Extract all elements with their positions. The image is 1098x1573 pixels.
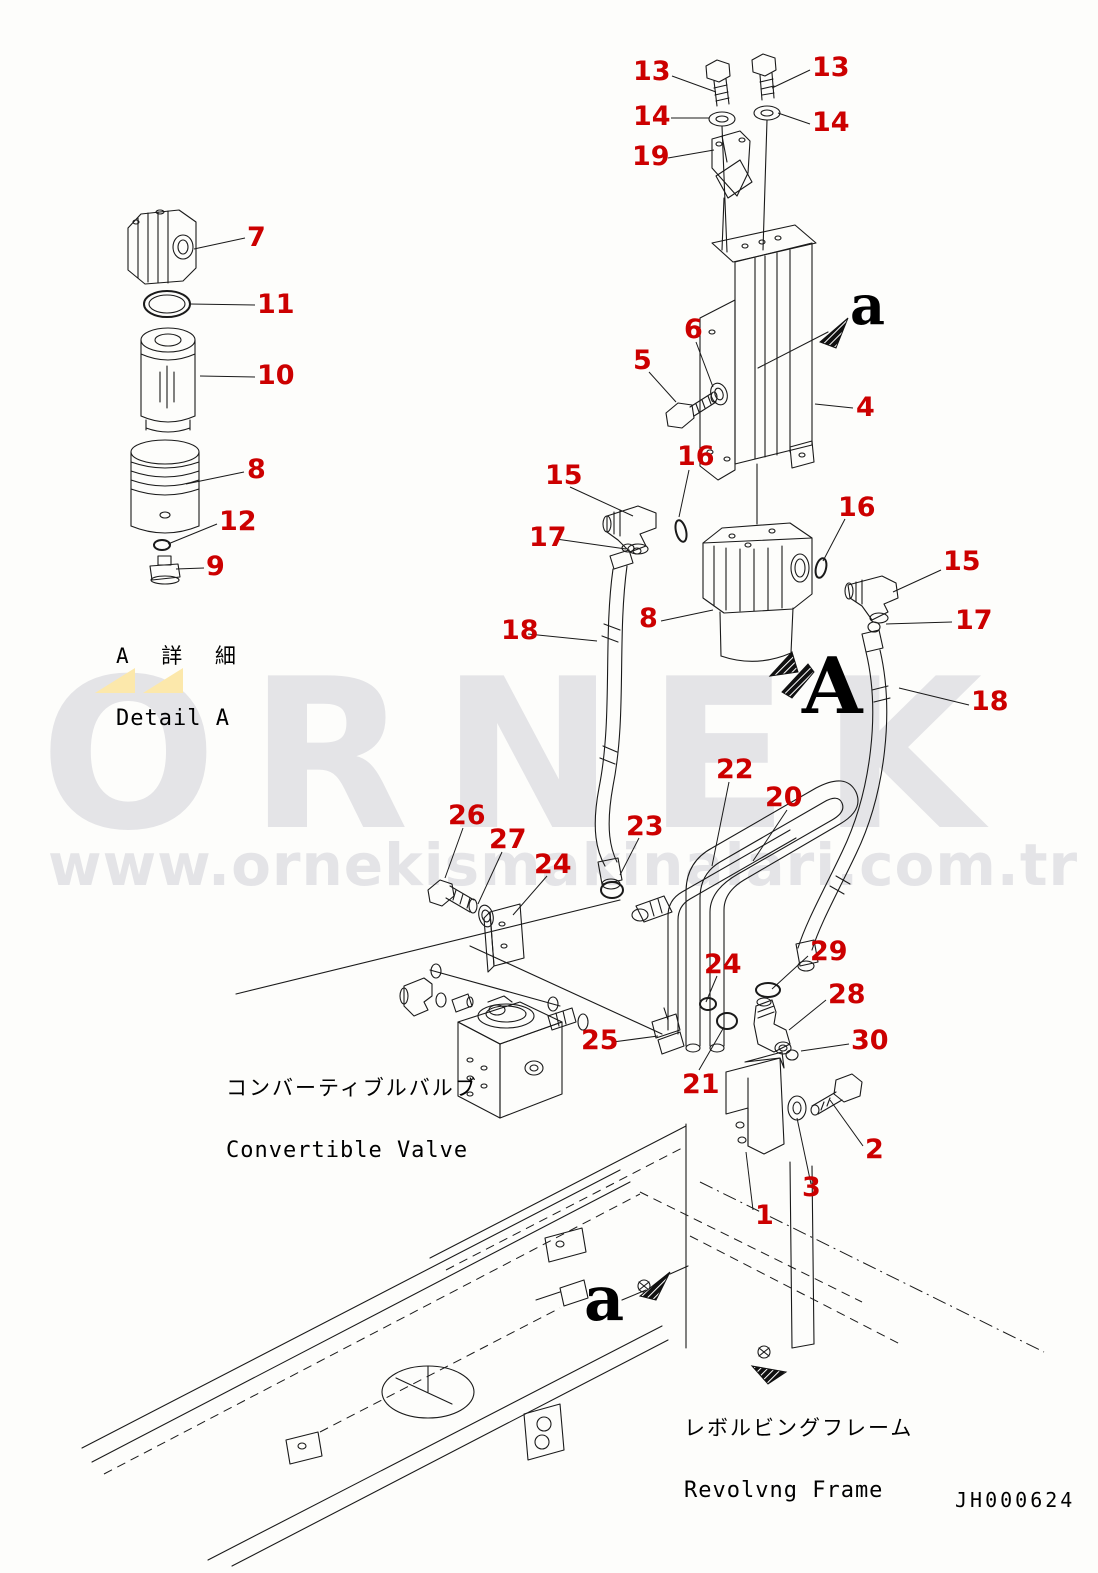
- filter-cap-7-drawing: [128, 210, 196, 284]
- ring-30-drawing: [786, 1050, 798, 1060]
- bolt-13-left-drawing: [706, 60, 730, 106]
- frame-caption-arrow: [752, 1366, 786, 1384]
- o-ring-23-drawing: [601, 882, 623, 898]
- bracket-1-drawing: [726, 1052, 784, 1154]
- bolt-26-drawing: [428, 880, 477, 913]
- washer-3-drawing: [788, 1096, 806, 1120]
- hose-18-left-drawing: [595, 550, 633, 889]
- drawing-number: JH000624: [955, 1488, 1075, 1512]
- o-ring-21-drawing: [717, 1013, 737, 1029]
- plate-4-drawing: [700, 225, 816, 524]
- exploded-parts-drawing: [0, 0, 1098, 1573]
- elbow-15-right-drawing: [845, 576, 898, 623]
- ring-24-lower-drawing: [700, 998, 716, 1010]
- plug-9-drawing: [150, 556, 180, 584]
- washer-6-drawing: [708, 381, 730, 407]
- o-ring-11-drawing: [144, 291, 190, 317]
- filter-case-8-left-drawing: [131, 440, 199, 533]
- view-arrow-a-top: [758, 318, 848, 368]
- hose-18-right-drawing: [796, 630, 890, 971]
- leader-lines: [168, 70, 969, 1210]
- assembly-axis-lines: [236, 900, 662, 1034]
- washer-14-left-drawing: [709, 112, 735, 126]
- o-ring-16-center-drawing: [673, 519, 688, 543]
- bolt-13-right-drawing: [752, 54, 776, 100]
- view-arrow-a-bottom: [622, 1266, 688, 1300]
- convertible-valve-drawing: [400, 978, 588, 1118]
- revolving-frame-drawing: [82, 1124, 1044, 1566]
- tube-20-drawing: [686, 781, 858, 1052]
- washer-14-right-drawing: [754, 106, 780, 120]
- ring-12-drawing: [154, 540, 170, 550]
- filter-assembly-8-drawing: [703, 523, 812, 661]
- pipe-22-drawing: [632, 830, 796, 1034]
- elbow-28-drawing: [754, 998, 791, 1054]
- bolt-5-drawing: [666, 392, 717, 428]
- parts-diagram-page: ORNEK www.ornekismakinalari.com.tr: [0, 0, 1098, 1573]
- bracket-19-drawing: [712, 131, 752, 250]
- view-arrow-A-mid: [770, 652, 814, 698]
- o-ring-16-right-drawing: [814, 557, 829, 579]
- filter-element-10-drawing: [141, 328, 195, 432]
